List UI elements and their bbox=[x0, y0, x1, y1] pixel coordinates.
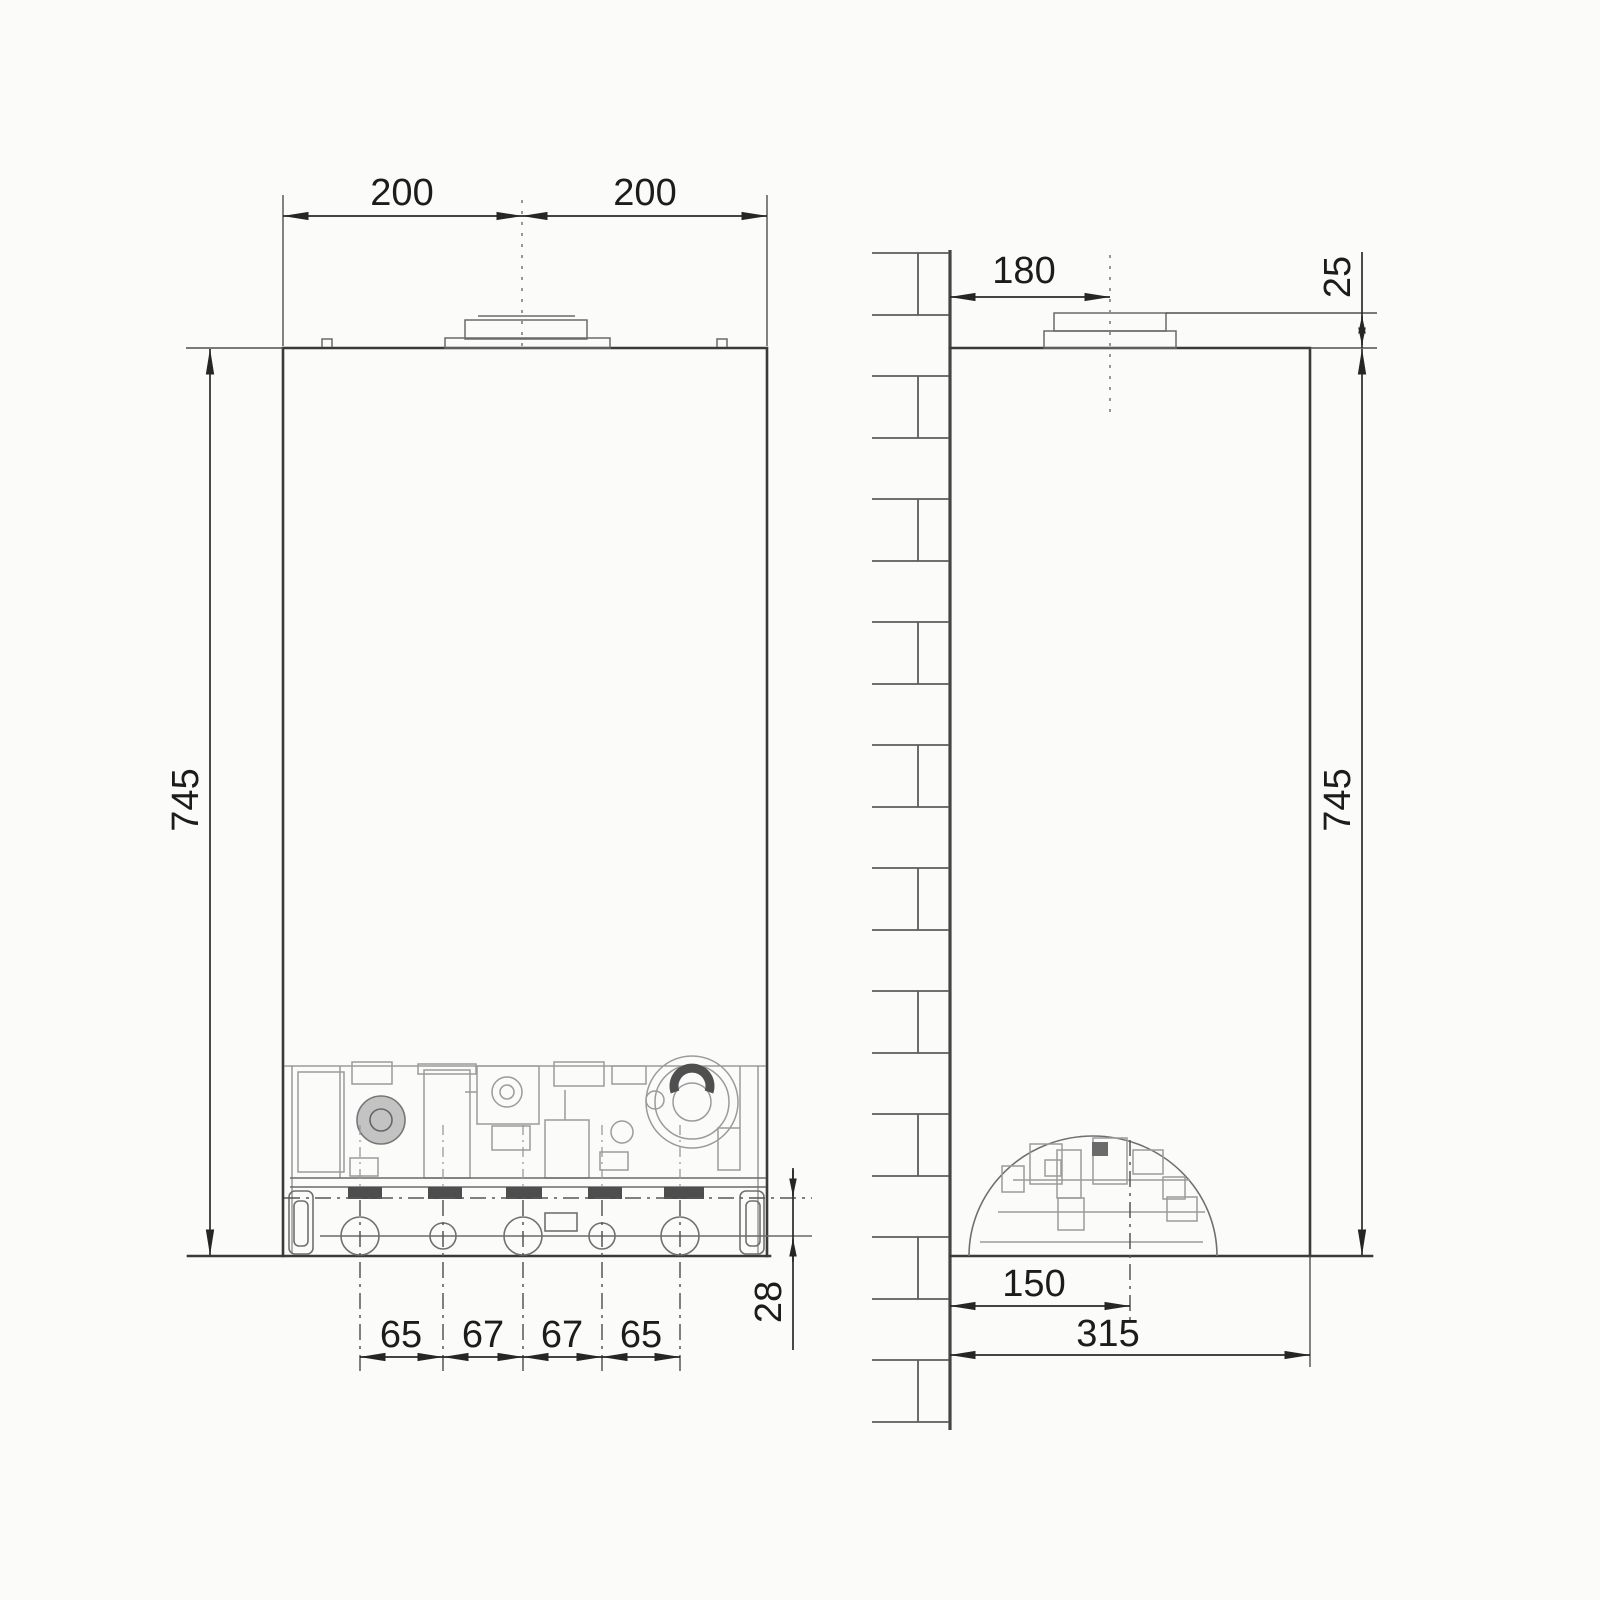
side-trap-dome bbox=[969, 1136, 1217, 1256]
side-case-outline bbox=[950, 348, 1372, 1367]
side-flue-collar bbox=[1044, 313, 1377, 348]
side-view: 180 25 745 bbox=[872, 250, 1377, 1430]
front-internal-components bbox=[284, 1056, 766, 1254]
dim-front-height: 745 bbox=[165, 349, 210, 1255]
trap-dark-fitting bbox=[1092, 1142, 1108, 1156]
dim-depth-label: 315 bbox=[1076, 1313, 1139, 1355]
boiler-dimension-drawing: 200 200 745 bbox=[0, 0, 1600, 1600]
front-view: 200 200 745 bbox=[165, 172, 812, 1376]
dim-side-height-label: 745 bbox=[1317, 768, 1359, 831]
valve-knob bbox=[357, 1096, 405, 1144]
dim-front-pipe-spacing: 65 67 67 65 bbox=[360, 1314, 680, 1357]
dim-front-pipe-drop: 28 bbox=[748, 1168, 793, 1350]
dim-side-height: 745 bbox=[1317, 349, 1362, 1255]
dim-wall-to-flue-label: 180 bbox=[992, 250, 1055, 292]
dim-side-collar-height: 25 bbox=[1317, 252, 1362, 348]
dim-pipe-drop-label: 28 bbox=[748, 1281, 790, 1323]
dim-front-height-label: 745 bbox=[165, 768, 207, 831]
case-clip-left bbox=[322, 339, 332, 347]
dim-side-depth: 315 bbox=[950, 1313, 1310, 1355]
dim-spacing-1-label: 65 bbox=[380, 1314, 422, 1356]
dim-collar-height-label: 25 bbox=[1317, 256, 1359, 298]
dim-wall-to-trap-label: 150 bbox=[1002, 1263, 1065, 1305]
dim-side-wall-to-flue: 180 bbox=[950, 250, 1110, 297]
drawing-svg: 200 200 745 bbox=[0, 0, 1600, 1600]
case-clip-right bbox=[717, 339, 727, 347]
dim-spacing-4-label: 65 bbox=[620, 1314, 662, 1356]
dim-spacing-3-label: 67 bbox=[541, 1314, 583, 1356]
front-flue-collar bbox=[445, 316, 610, 348]
dim-front-flue-right-label: 200 bbox=[613, 172, 676, 214]
front-case-outline bbox=[186, 348, 770, 1256]
dim-side-wall-to-trap: 150 bbox=[950, 1263, 1130, 1306]
dim-spacing-2-label: 67 bbox=[462, 1314, 504, 1356]
dim-front-flue-left-label: 200 bbox=[370, 172, 433, 214]
mounting-wall bbox=[872, 250, 950, 1430]
